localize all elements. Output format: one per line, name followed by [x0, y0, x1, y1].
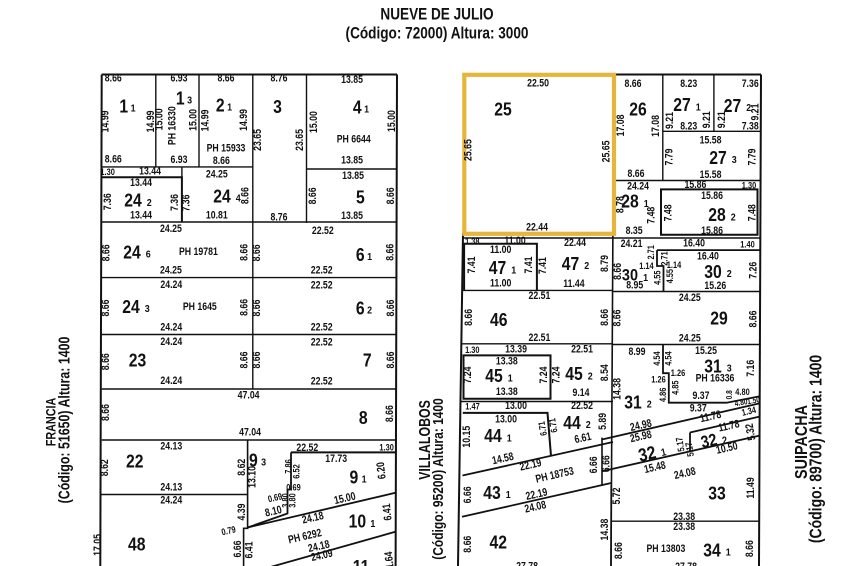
svg-text:8.66: 8.66: [100, 404, 112, 421]
svg-text:4.54: 4.54: [663, 351, 674, 366]
svg-text:11.49: 11.49: [745, 477, 757, 499]
svg-text:22.52: 22.52: [311, 265, 333, 277]
svg-text:26: 26: [629, 98, 646, 120]
svg-text:7.41: 7.41: [466, 256, 478, 273]
svg-text:(Código: 89700) Altura: 1400: (Código: 89700) Altura: 1400: [807, 355, 826, 543]
svg-text:9.21: 9.21: [749, 103, 761, 120]
svg-text:14.99: 14.99: [238, 109, 250, 131]
svg-text:22.52: 22.52: [311, 280, 333, 292]
svg-text:8.66: 8.66: [385, 299, 397, 316]
svg-text:8.76: 8.76: [271, 72, 288, 84]
svg-text:22.51: 22.51: [528, 332, 550, 344]
svg-text:22: 22: [126, 450, 143, 472]
svg-text:8.66: 8.66: [463, 309, 475, 326]
svg-text:8.66: 8.66: [238, 351, 250, 368]
svg-text:8.66: 8.66: [599, 309, 611, 326]
svg-text:NUEVE DE JULIO: NUEVE DE JULIO: [380, 5, 493, 24]
svg-text:8.66: 8.66: [251, 299, 263, 316]
svg-text:14.38: 14.38: [599, 518, 611, 540]
svg-text:7.79: 7.79: [663, 148, 675, 165]
svg-text:13.85: 13.85: [342, 170, 364, 182]
svg-text:15.86: 15.86: [701, 225, 723, 237]
svg-text:6.93: 6.93: [171, 72, 188, 84]
svg-text:9.37: 9.37: [693, 390, 710, 402]
svg-text:46: 46: [490, 309, 507, 331]
svg-text:22.44: 22.44: [564, 237, 586, 249]
svg-text:1.30: 1.30: [100, 166, 115, 177]
svg-text:23.65: 23.65: [252, 129, 264, 151]
svg-text:7.26: 7.26: [747, 261, 759, 278]
svg-text:PH 16330: PH 16330: [166, 106, 178, 145]
svg-text:8.66: 8.66: [613, 542, 625, 559]
svg-text:8.66: 8.66: [251, 244, 263, 261]
svg-text:8.66: 8.66: [385, 187, 397, 204]
svg-text:8.66: 8.66: [238, 244, 250, 261]
svg-text:4.85: 4.85: [669, 380, 680, 395]
svg-text:PH 6644: PH 6644: [337, 133, 371, 145]
svg-text:7.36: 7.36: [742, 78, 759, 90]
svg-text:8.76: 8.76: [271, 211, 288, 223]
svg-text:1.30: 1.30: [742, 179, 757, 190]
svg-text:47.04: 47.04: [239, 426, 261, 438]
svg-text:8.54: 8.54: [599, 364, 611, 381]
svg-text:8.66: 8.66: [611, 309, 623, 326]
svg-text:6.52: 6.52: [290, 464, 301, 479]
svg-text:24.25: 24.25: [679, 292, 701, 304]
svg-text:9.21: 9.21: [716, 111, 728, 128]
svg-text:7.79: 7.79: [746, 148, 758, 165]
svg-text:PH 15933: PH 15933: [207, 142, 246, 154]
svg-text:6.41: 6.41: [381, 503, 395, 522]
svg-text:8: 8: [359, 407, 368, 429]
svg-text:5.72: 5.72: [611, 487, 623, 504]
svg-text:1.14: 1.14: [639, 260, 654, 271]
svg-text:7.24: 7.24: [550, 366, 562, 383]
svg-text:1.47: 1.47: [465, 401, 480, 412]
svg-text:22.52: 22.52: [296, 442, 318, 454]
svg-text:6.66: 6.66: [232, 540, 244, 557]
svg-text:15.00: 15.00: [153, 108, 165, 130]
svg-text:1.26: 1.26: [651, 374, 666, 385]
svg-text:23.38: 23.38: [673, 521, 695, 533]
svg-text:22.44: 22.44: [526, 221, 548, 233]
svg-text:10.15: 10.15: [461, 425, 473, 447]
svg-text:42: 42: [490, 531, 507, 553]
svg-text:15.58: 15.58: [700, 135, 722, 147]
svg-text:22.52: 22.52: [311, 336, 333, 348]
svg-text:25: 25: [494, 98, 512, 120]
svg-text:7.24: 7.24: [462, 366, 474, 383]
svg-text:24.24: 24.24: [160, 321, 182, 333]
svg-text:7.36: 7.36: [102, 193, 114, 210]
svg-text:15.00: 15.00: [308, 111, 320, 133]
svg-text:PH 19781: PH 19781: [179, 246, 218, 258]
svg-text:8.66: 8.66: [385, 243, 397, 260]
svg-text:8.66: 8.66: [612, 263, 624, 280]
svg-text:13.00: 13.00: [495, 413, 517, 425]
svg-text:22.52: 22.52: [311, 321, 333, 333]
svg-text:6.66: 6.66: [600, 455, 612, 472]
svg-text:8.66: 8.66: [744, 540, 756, 557]
svg-text:9.21: 9.21: [701, 111, 713, 128]
svg-text:7.16: 7.16: [745, 359, 757, 376]
svg-text:22.51: 22.51: [528, 290, 550, 302]
svg-text:8.78: 8.78: [615, 196, 627, 213]
svg-text:PH 13803: PH 13803: [646, 543, 685, 555]
svg-text:27.78: 27.78: [675, 561, 697, 566]
svg-text:24.13: 24.13: [160, 481, 182, 493]
svg-text:13.39: 13.39: [505, 344, 527, 356]
svg-text:4.55: 4.55: [651, 270, 662, 285]
svg-text:6.41: 6.41: [244, 541, 256, 558]
svg-text:8.66: 8.66: [384, 405, 396, 422]
svg-text:24.13: 24.13: [160, 441, 182, 453]
svg-text:24.24: 24.24: [160, 375, 182, 387]
svg-text:13.44: 13.44: [130, 209, 152, 221]
svg-text:3.80: 3.80: [287, 493, 298, 508]
svg-text:8.35: 8.35: [626, 225, 643, 237]
svg-text:4.39: 4.39: [236, 503, 248, 520]
svg-text:7.41: 7.41: [523, 256, 535, 273]
svg-text:14.99: 14.99: [199, 109, 211, 131]
svg-text:5: 5: [356, 186, 365, 208]
svg-text:2.71: 2.71: [645, 245, 656, 260]
svg-text:15.86: 15.86: [701, 190, 723, 202]
svg-text:13.44: 13.44: [139, 165, 161, 177]
svg-text:48: 48: [128, 533, 146, 555]
svg-text:4.86: 4.86: [657, 387, 668, 402]
svg-text:7: 7: [363, 349, 372, 371]
svg-text:8.23: 8.23: [680, 120, 697, 132]
svg-text:11.00: 11.00: [490, 244, 512, 256]
svg-text:3: 3: [273, 96, 282, 118]
svg-text:16.40: 16.40: [683, 238, 705, 250]
svg-text:8.66: 8.66: [238, 299, 250, 316]
svg-text:22.50: 22.50: [527, 77, 549, 89]
svg-text:11: 11: [353, 556, 370, 566]
svg-text:1.40: 1.40: [740, 239, 755, 250]
svg-text:13.44: 13.44: [130, 177, 152, 189]
svg-text:15.25: 15.25: [695, 345, 717, 357]
svg-text:4.55: 4.55: [664, 269, 675, 284]
svg-text:14.99: 14.99: [99, 110, 111, 132]
svg-text:8.66: 8.66: [251, 351, 263, 368]
svg-text:13.38: 13.38: [496, 386, 518, 398]
svg-text:15.00: 15.00: [188, 109, 200, 131]
svg-text:7.36: 7.36: [181, 194, 193, 211]
svg-text:17.73: 17.73: [325, 453, 347, 465]
svg-text:22.52: 22.52: [311, 375, 333, 387]
svg-text:25.65: 25.65: [601, 140, 613, 162]
svg-text:8.23: 8.23: [680, 78, 697, 90]
svg-text:9.21: 9.21: [664, 112, 676, 129]
svg-text:10.81: 10.81: [206, 209, 228, 221]
svg-text:PH 1645: PH 1645: [183, 301, 217, 313]
svg-text:1.30: 1.30: [379, 442, 394, 453]
svg-text:1.26: 1.26: [671, 367, 686, 378]
svg-text:24.24: 24.24: [160, 279, 182, 291]
svg-text:8.66: 8.66: [462, 535, 474, 552]
svg-text:5.89: 5.89: [597, 413, 609, 430]
svg-text:1.64: 1.64: [383, 551, 397, 566]
svg-text:8.66: 8.66: [628, 168, 645, 180]
svg-text:(Código: 72000) Altura: 3000: (Código: 72000) Altura: 3000: [346, 24, 529, 43]
svg-text:15.26: 15.26: [704, 280, 726, 292]
svg-text:14.38: 14.38: [611, 378, 623, 400]
svg-text:11.00: 11.00: [490, 278, 512, 290]
svg-text:1.38: 1.38: [465, 235, 480, 246]
svg-text:6.66: 6.66: [462, 486, 474, 503]
svg-text:13.85: 13.85: [341, 210, 363, 222]
svg-text:13.85: 13.85: [341, 74, 363, 86]
svg-text:8.66: 8.66: [100, 353, 112, 370]
svg-text:8.66: 8.66: [105, 153, 122, 165]
svg-text:11.44: 11.44: [563, 278, 585, 290]
svg-text:8.66: 8.66: [100, 299, 112, 316]
svg-text:7.24: 7.24: [538, 366, 550, 383]
svg-text:17.08: 17.08: [615, 114, 627, 136]
svg-text:25.65: 25.65: [462, 139, 474, 161]
svg-text:7.38: 7.38: [742, 120, 759, 132]
svg-text:1.30: 1.30: [465, 344, 480, 355]
svg-text:7.41: 7.41: [537, 257, 549, 274]
svg-text:6.93: 6.93: [171, 154, 188, 166]
svg-text:22.52: 22.52: [571, 400, 593, 412]
svg-text:24.25: 24.25: [160, 265, 182, 277]
svg-text:47.04: 47.04: [238, 390, 260, 402]
svg-text:24.25: 24.25: [679, 332, 701, 344]
svg-text:1.14: 1.14: [667, 259, 682, 270]
svg-text:24.21: 24.21: [621, 238, 643, 250]
svg-text:7.48: 7.48: [662, 204, 674, 221]
svg-text:0.69: 0.69: [286, 481, 301, 492]
svg-text:15.00: 15.00: [386, 110, 398, 132]
svg-text:PH 16336: PH 16336: [696, 373, 735, 385]
svg-text:13.85: 13.85: [341, 155, 363, 167]
svg-text:8.66: 8.66: [747, 310, 759, 327]
svg-text:23: 23: [129, 349, 146, 371]
svg-text:23.65: 23.65: [294, 129, 306, 151]
svg-text:8.66: 8.66: [239, 187, 251, 204]
svg-text:8.66: 8.66: [218, 72, 235, 84]
svg-text:13.00: 13.00: [505, 400, 527, 412]
svg-text:8.66: 8.66: [213, 155, 230, 167]
svg-text:8.62: 8.62: [99, 459, 111, 476]
svg-text:7.48: 7.48: [746, 204, 758, 221]
svg-text:6.66: 6.66: [588, 456, 600, 473]
svg-text:33: 33: [708, 482, 725, 504]
svg-text:8.66: 8.66: [100, 244, 112, 261]
svg-text:22.52: 22.52: [312, 225, 334, 237]
svg-text:(Código: 95200) Altura: 1400: (Código: 95200) Altura: 1400: [430, 398, 447, 560]
svg-text:4.54: 4.54: [651, 351, 662, 366]
svg-text:8.66: 8.66: [307, 187, 319, 204]
svg-text:13.38: 13.38: [496, 355, 518, 367]
svg-text:8.79: 8.79: [599, 255, 611, 272]
svg-text:24.25: 24.25: [206, 169, 228, 181]
svg-text:24.25: 24.25: [160, 223, 182, 235]
svg-text:24.24: 24.24: [160, 494, 182, 506]
svg-text:17.05: 17.05: [92, 534, 104, 556]
svg-text:22.51: 22.51: [571, 344, 593, 356]
svg-text:9.14: 9.14: [573, 387, 590, 399]
svg-text:17.08: 17.08: [650, 115, 662, 137]
svg-text:8.66: 8.66: [105, 72, 122, 84]
svg-text:16.40: 16.40: [697, 250, 719, 262]
svg-text:(Código: 51650) Altura: 1400: (Código: 51650) Altura: 1400: [55, 336, 73, 503]
svg-text:29: 29: [710, 307, 727, 329]
svg-text:6.20: 6.20: [375, 461, 389, 480]
svg-text:8.99: 8.99: [629, 346, 646, 358]
svg-text:8.66: 8.66: [625, 78, 642, 90]
svg-text:7.48: 7.48: [646, 206, 658, 223]
svg-text:0.8: 0.8: [724, 390, 734, 399]
svg-text:27.78: 27.78: [516, 560, 538, 566]
svg-text:8.66: 8.66: [385, 351, 397, 368]
svg-text:8.95: 8.95: [626, 279, 643, 291]
svg-text:13.10: 13.10: [247, 466, 259, 488]
svg-text:24.24: 24.24: [160, 336, 182, 348]
svg-text:24.24: 24.24: [627, 180, 649, 192]
